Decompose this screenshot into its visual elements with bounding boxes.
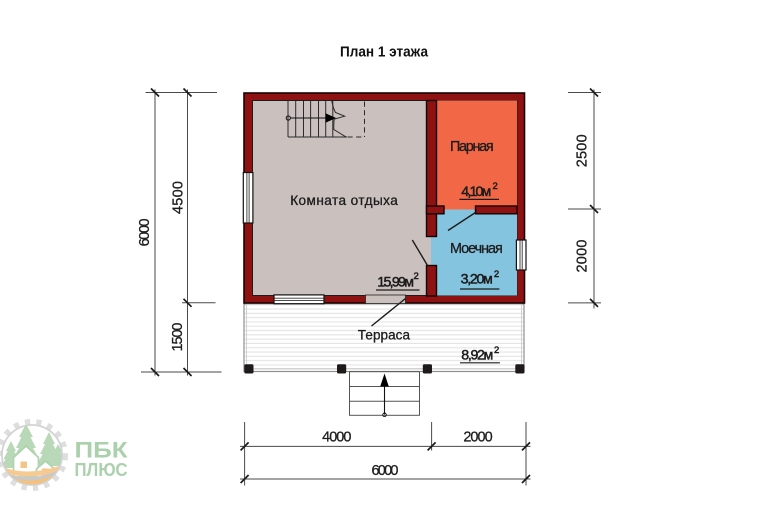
svg-text:4,10м: 4,10м [461,184,491,200]
svg-text:2: 2 [493,181,498,192]
svg-text:2: 2 [494,269,499,280]
svg-text:8,92м: 8,92м [461,348,493,364]
svg-text:Парная: Парная [450,139,494,155]
svg-text:1500: 1500 [170,323,186,352]
svg-text:ПЛЮС: ПЛЮС [75,459,128,480]
svg-text:6000: 6000 [137,218,153,246]
svg-text:2500: 2500 [575,134,591,167]
svg-text:15,99м: 15,99м [377,274,414,290]
svg-text:4000: 4000 [322,429,351,445]
svg-text:2: 2 [414,271,419,282]
svg-text:Терраса: Терраса [358,328,411,343]
svg-text:2000: 2000 [463,429,492,445]
svg-text:План 1 этажа: План 1 этажа [340,44,429,61]
svg-text:2000: 2000 [575,240,591,273]
svg-text:3,20м: 3,20м [461,272,493,288]
svg-text:Комната отдыха: Комната отдыха [290,193,398,208]
svg-text:6000: 6000 [372,463,399,479]
svg-text:Моечная: Моечная [450,241,503,257]
svg-text:2: 2 [494,345,499,356]
svg-text:4500: 4500 [170,181,186,214]
